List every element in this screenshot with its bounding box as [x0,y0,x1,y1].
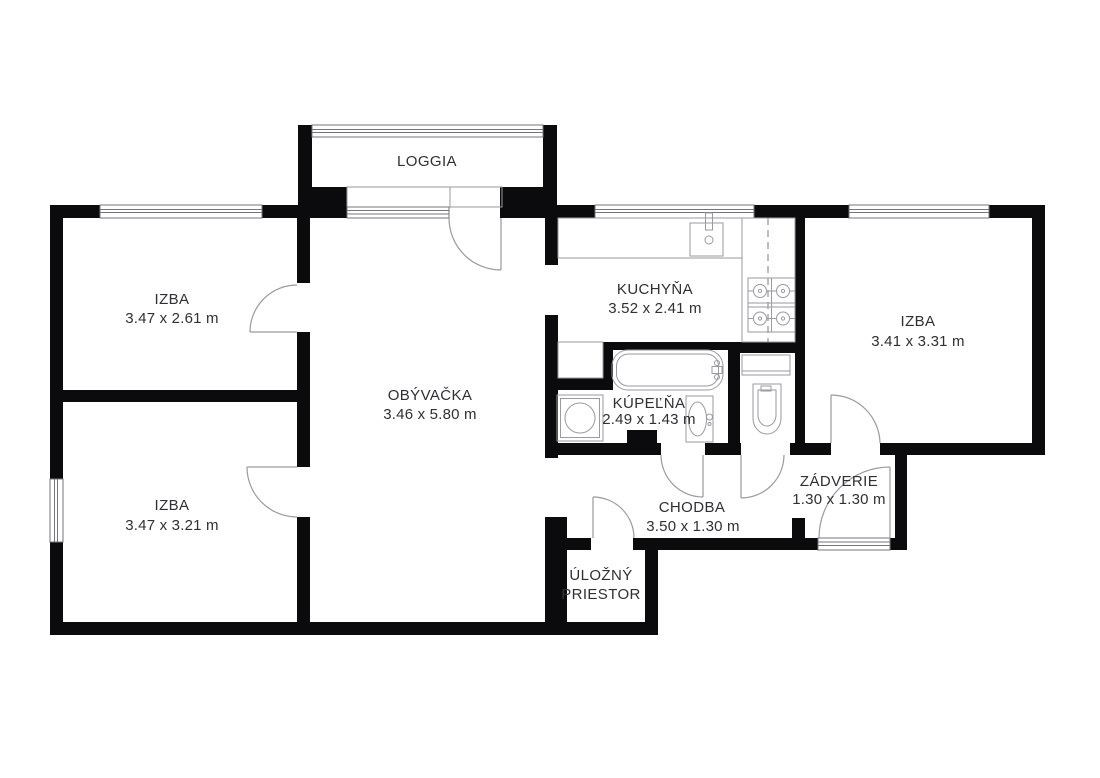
room-dims-kuchyna: 3.52 x 2.41 m [608,300,702,317]
window-izba-right [849,205,989,218]
door-wc [741,455,784,498]
loggia-railing [312,125,543,137]
room-label-chodba: CHODBA [659,499,726,516]
room-label-zadverie: ZÁDVERIE [800,473,878,490]
room-label-kupelna: KÚPEĽŇA [613,395,686,412]
room-dims-obyvacka: 3.46 x 5.80 m [383,406,477,423]
window-kitchen [595,205,754,218]
window-izba-bottom-left [50,479,63,542]
room-label-obyvacka: OBÝVAČKA [388,387,473,404]
room-label-izba-top-left: IZBA [155,291,190,308]
floor-plan: LOGGIA IZBA 3.47 x 2.61 m KUCHYŇA 3.52 x… [0,0,1100,778]
room-label-loggia: LOGGIA [397,153,457,170]
floor-plan-canvas: LOGGIA IZBA 3.47 x 2.61 m KUCHYŇA 3.52 x… [0,0,1100,778]
room-label-izba-right: IZBA [901,313,936,330]
window-izba-top-left [100,205,262,218]
room-dims-izba-top-left: 3.47 x 2.61 m [125,310,219,327]
room-dims-izba-bottom-left: 3.47 x 3.21 m [125,517,219,534]
washing-machine [557,395,603,441]
bathtub [612,350,723,390]
door-bathroom [661,455,703,497]
room-dims-izba-right: 3.41 x 3.31 m [871,333,965,350]
room-label-kuchyna: KUCHYŇA [617,281,693,298]
room-dims-chodba: 3.50 x 1.30 m [646,518,740,535]
loggia-window-sill [347,187,502,218]
toilet [742,355,790,434]
door-izba-top-left [250,285,297,332]
door-izba-right [831,395,880,443]
door-storage [593,497,634,538]
room-label-izba-bottom-left: IZBA [155,497,190,514]
room-dims-zadverie: 1.30 x 1.30 m [792,491,886,508]
entrance-threshold [818,538,890,550]
room-label-ulozny-line1: ÚLOŽNÝ [569,567,632,584]
walls [50,125,1045,635]
door-loggia [449,218,501,270]
room-dims-kupelna: 2.49 x 1.43 m [602,411,696,428]
room-label-ulozny-line2: PRIESTOR [561,586,641,603]
door-izba-bottom-left [247,467,297,517]
